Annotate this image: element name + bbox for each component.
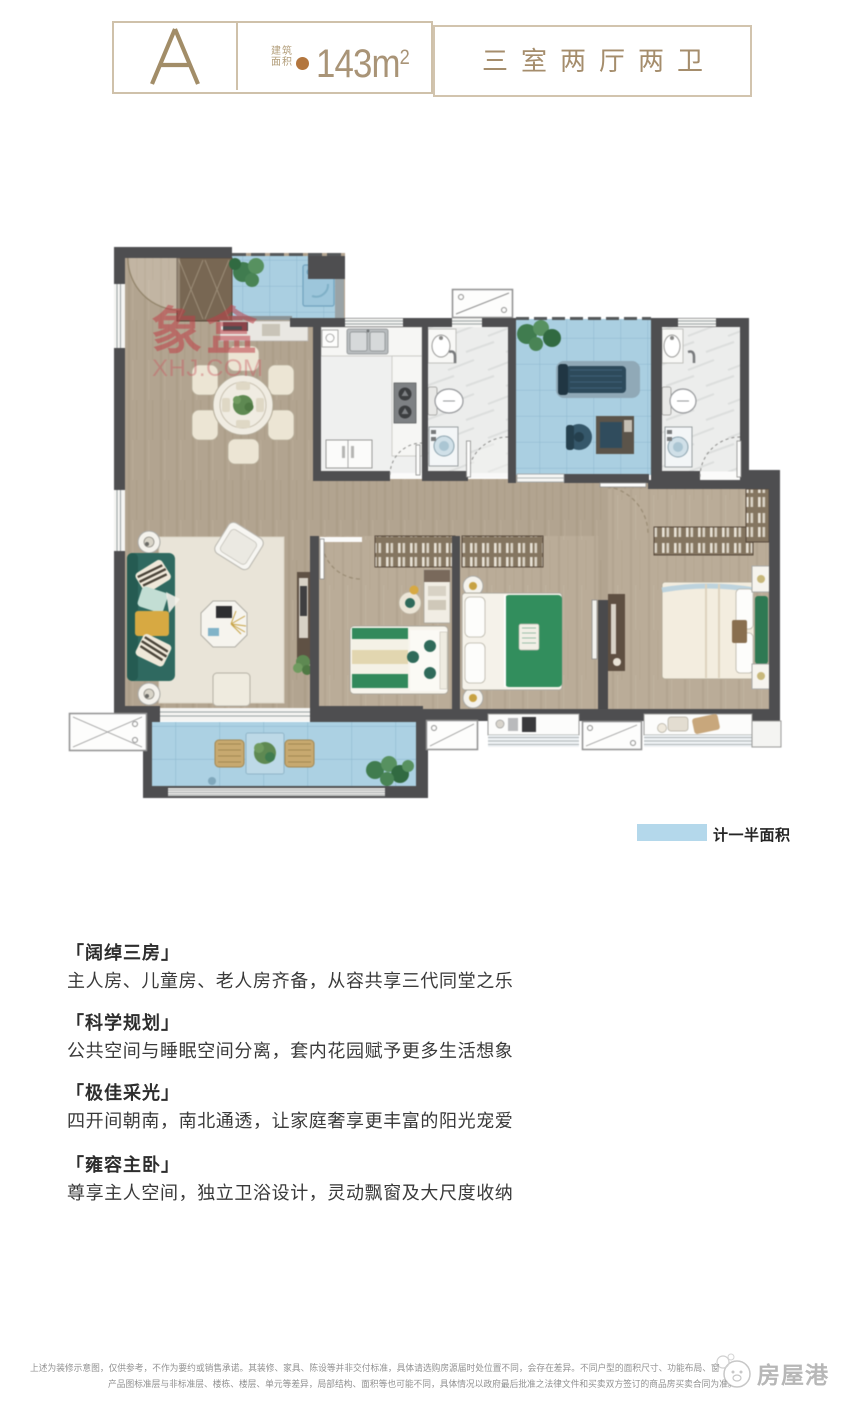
svg-text:房屋港: 房屋港 xyxy=(757,1362,829,1388)
svg-text:XHJ.COM: XHJ.COM xyxy=(152,355,264,382)
svg-text:象盒: 象盒 xyxy=(151,303,261,360)
